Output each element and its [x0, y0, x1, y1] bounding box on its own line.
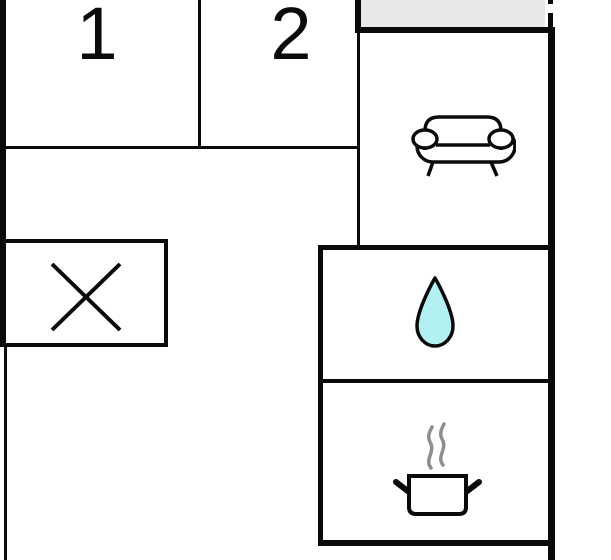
- cross-icon: [4, 243, 164, 343]
- crossed-area-box: [0, 239, 168, 347]
- wall-left-lower: [4, 347, 7, 560]
- opening-dash-segment: [548, 0, 553, 4]
- cooking-pot-icon: [388, 420, 488, 520]
- wall-room-divider: [198, 0, 201, 149]
- room-1-label: 1: [57, 0, 137, 71]
- wall-bathroom-left: [318, 245, 323, 546]
- wall-kitchen-bottom: [318, 540, 552, 546]
- room-2-label: 2: [251, 0, 331, 71]
- opening-dash-segment: [548, 13, 553, 27]
- floor-plan: 1 2: [0, 0, 611, 560]
- wall-balcony-bottom: [355, 27, 553, 33]
- water-drop-icon: [412, 275, 458, 351]
- balcony-area: [361, 0, 545, 27]
- wall-living-left: [357, 33, 360, 245]
- wall-rooms-bottom: [0, 146, 358, 149]
- wall-right: [548, 27, 555, 560]
- wall-bathroom-kitchen-divider: [318, 379, 552, 383]
- sofa-icon: [410, 110, 516, 180]
- wall-bathroom-top: [318, 245, 552, 250]
